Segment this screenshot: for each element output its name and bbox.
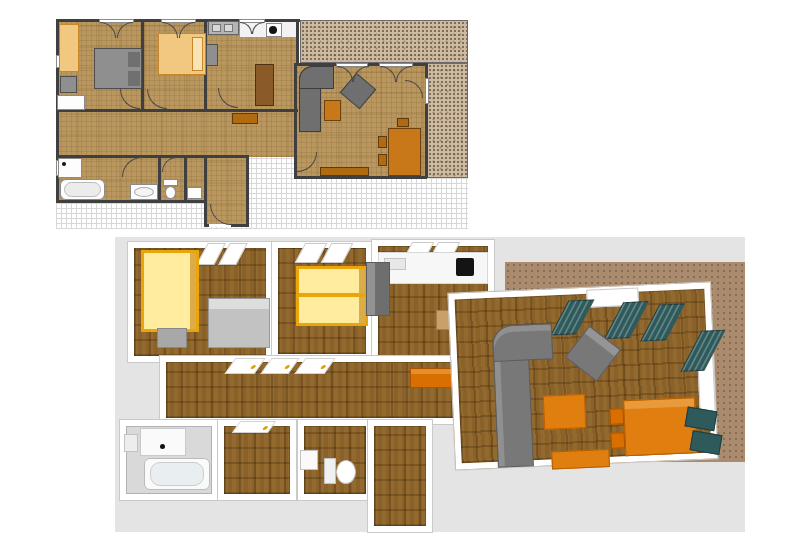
yellow-wardrobe xyxy=(141,250,199,332)
teal-curtain xyxy=(604,301,649,339)
corridor-3d xyxy=(368,420,432,532)
cooktop xyxy=(456,258,474,276)
coffee-table-3d xyxy=(543,394,586,430)
orange-chair xyxy=(609,408,624,425)
wc-washbasin xyxy=(300,450,318,470)
bunk-bed-rail xyxy=(299,293,365,297)
fridge xyxy=(366,262,390,316)
small-fixture xyxy=(124,434,138,452)
corner-sofa-3d xyxy=(492,323,554,362)
drain-dot xyxy=(160,444,165,449)
orange-sideboard-3d xyxy=(410,368,452,388)
living-room-3d xyxy=(448,282,717,469)
toilet-bowl-3d xyxy=(336,460,356,484)
bathtub-3d-inner xyxy=(150,462,204,486)
gray-nightstand xyxy=(157,328,187,348)
washbasin-counter-3d xyxy=(140,428,186,456)
floor-plan-screenshot xyxy=(0,0,800,550)
gray-bed-3d xyxy=(208,298,270,348)
view-3d xyxy=(0,0,800,550)
orange-chair xyxy=(611,432,626,449)
teal-curtain xyxy=(640,303,685,341)
sideboard-3d xyxy=(551,449,610,470)
toilet-tank-3d xyxy=(324,458,336,484)
